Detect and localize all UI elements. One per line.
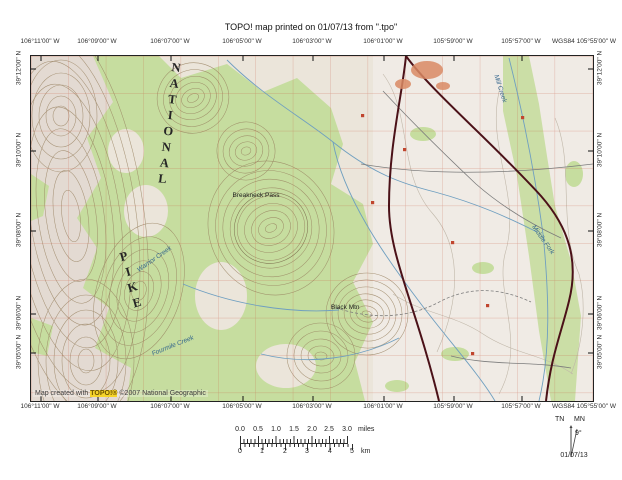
- coord-bottom-8: WGS84 105°55'00" W: [552, 403, 616, 410]
- km-unit: km: [361, 448, 370, 455]
- coord-top-5: 106°01'00" W: [363, 38, 402, 45]
- peak-label: Black Mtn: [331, 304, 360, 311]
- coord-left-2: 39°08'00" N: [16, 213, 23, 247]
- coord-top-2: 106°07'00" W: [150, 38, 189, 45]
- coord-top-1: 106°09'00" W: [77, 38, 116, 45]
- coord-bottom-4: 106°03'00" W: [292, 403, 331, 410]
- topo-brand: TOPO!®: [90, 390, 117, 397]
- coord-left-3: 39°06'00" N: [16, 296, 23, 330]
- km-tick-3: 3: [305, 448, 309, 455]
- miles-tick-6: 3.0: [342, 426, 352, 433]
- declination-diagram: TN MN 9° 01/07/13: [544, 416, 614, 472]
- miles-tick-5: 2.5: [324, 426, 334, 433]
- coord-bottom-7: 105°57'00" W: [501, 403, 540, 410]
- declination-angle: 9°: [575, 430, 582, 437]
- true-north-label: TN: [555, 416, 564, 423]
- miles-tick-3: 1.5: [289, 426, 299, 433]
- coord-left-4: 39°05'00" N: [16, 335, 23, 369]
- coord-bottom-3: 106°05'00" W: [222, 403, 261, 410]
- watermark-suffix: ©2007 National Geographic: [117, 390, 205, 397]
- map-canvas[interactable]: NATIONAL PIKE Breakneck Pass Black Mtn M…: [30, 55, 594, 402]
- coord-top-4: 106°03'00" W: [292, 38, 331, 45]
- watermark: Map created with TOPO!® ©2007 National G…: [33, 390, 208, 397]
- coord-left-0: 39°12'00" N: [16, 51, 23, 85]
- miles-tick-4: 2.0: [307, 426, 317, 433]
- coord-bottom-1: 106°09'00" W: [77, 403, 116, 410]
- coord-bottom-6: 105°59'00" W: [433, 403, 472, 410]
- page-title: TOPO! map printed on 01/07/13 from ".tpo…: [0, 22, 622, 32]
- coord-top-6: 105°59'00" W: [433, 38, 472, 45]
- km-tick-1: 1: [260, 448, 264, 455]
- miles-tick-0: 0.0: [235, 426, 245, 433]
- miles-tick-2: 1.0: [271, 426, 281, 433]
- coord-left-1: 39°10'00" N: [16, 133, 23, 167]
- coord-top-8: WGS84 105°55'00" W: [552, 38, 616, 45]
- coord-right-3: 39°06'00" N: [597, 296, 604, 330]
- magnetic-north-label: MN: [574, 416, 585, 423]
- coord-right-1: 39°10'00" N: [597, 133, 604, 167]
- coord-top-0: 106°11'00" W: [21, 38, 60, 45]
- topo-print-page: TOPO! map printed on 01/07/13 from ".tpo…: [0, 0, 622, 480]
- coord-bottom-0: 106°11'00" W: [21, 403, 60, 410]
- coord-right-2: 39°08'00" N: [597, 213, 604, 247]
- km-tick-0: 0: [238, 448, 242, 455]
- ruler-miles: [240, 436, 348, 444]
- coord-right-0: 39°12'00" N: [597, 51, 604, 85]
- pass-label: Breakneck Pass: [216, 192, 296, 199]
- coord-bottom-5: 106°01'00" W: [363, 403, 402, 410]
- coord-top-3: 106°05'00" W: [222, 38, 261, 45]
- coord-bottom-2: 106°07'00" W: [150, 403, 189, 410]
- km-tick-5: 5: [350, 448, 354, 455]
- miles-tick-1: 0.5: [253, 426, 263, 433]
- declination-date: 01/07/13: [548, 452, 600, 459]
- km-tick-2: 2: [283, 448, 287, 455]
- coord-top-7: 105°57'00" W: [501, 38, 540, 45]
- coord-right-4: 39°05'00" N: [597, 335, 604, 369]
- ruler-km: [240, 444, 353, 450]
- km-tick-4: 4: [328, 448, 332, 455]
- terrain-art: [31, 56, 593, 401]
- watermark-prefix: Map created with: [35, 390, 90, 397]
- miles-unit: miles: [358, 426, 374, 433]
